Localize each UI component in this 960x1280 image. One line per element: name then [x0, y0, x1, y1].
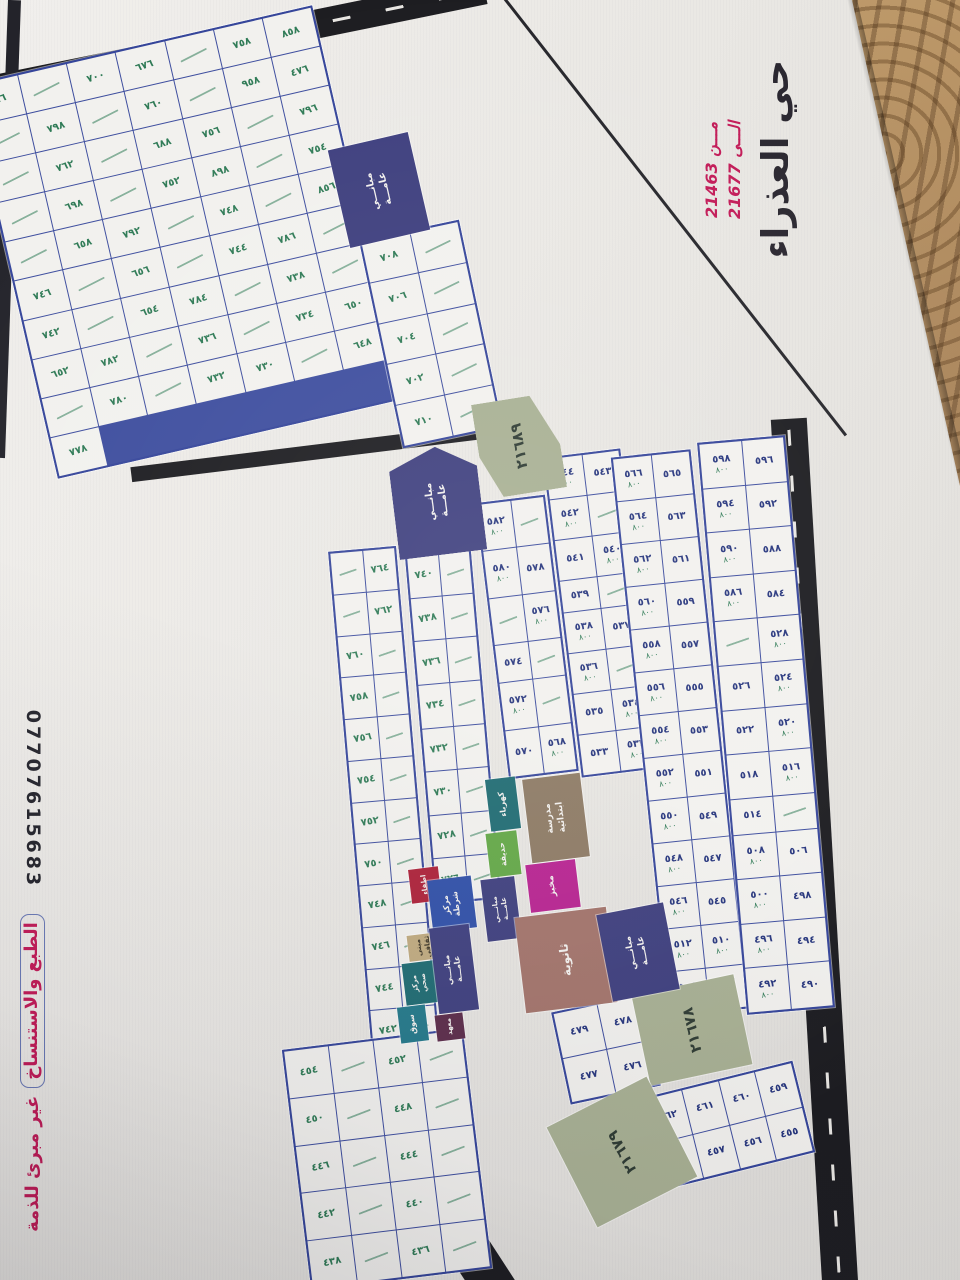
plot-cell: ٤٤٤ [385, 1130, 434, 1182]
plot-cell [385, 798, 420, 841]
plot-cell: ٤٣٨ [307, 1236, 356, 1280]
facility-institute: معهد [435, 1012, 466, 1041]
plot-cell: ٥٤٧ [692, 836, 734, 882]
plot-number-range: مـــن 21463 الـــى 21677 [699, 93, 747, 247]
plot-cell [370, 631, 405, 674]
facility-police-station: مركز شرطة [427, 876, 477, 933]
plot-cell: ٥٨٦٨٠٠ [711, 574, 756, 621]
plot-cell: ٥٥٨٨٠٠ [631, 627, 673, 673]
facility-primary-school: مدرسة ابتدائية [522, 773, 590, 863]
plot-cell: ٧٤٠ [407, 553, 441, 598]
plot-cell: ٥٨٨ [749, 526, 794, 573]
plot-cell: ٥٥٩ [665, 580, 707, 626]
plot-cell: ٤٤٦ [296, 1141, 345, 1193]
plot-cell: ٧٥٤ [349, 759, 384, 802]
plot-cell: ٥٦٤٨٠٠ [618, 498, 660, 544]
plot-cell [377, 715, 412, 758]
plot-cell: ٧٣٠ [426, 770, 460, 815]
plot-cell [340, 1136, 389, 1188]
plot-block-southwest: ٤٥٤٤٥٢٤٥٠٤٤٨٤٤٦٤٤٤٤٤٢٤٤٠٤٣٨٤٣٦ [282, 1028, 492, 1280]
plot-cell: ٥٨٤ [753, 571, 798, 618]
plot-cell: ٧٤٦ [363, 925, 398, 968]
plot-cell: ٥٣٦٨٠٠ [569, 650, 610, 694]
plot-cell: ٥٦٣ [656, 494, 698, 540]
plot-cell: ٧٣٦ [415, 640, 449, 685]
district-title: حي العذراء [744, 52, 806, 266]
plot-cell [346, 1183, 395, 1235]
plot-cell: ٥٩٠٨٠٠ [707, 530, 752, 577]
plot-cell: ٤٩٠ [788, 962, 833, 1009]
plot-cell: ٥٥٥ [674, 665, 716, 711]
plot-cell: ٧٤٤ [367, 967, 402, 1010]
plot-cell [381, 756, 416, 799]
plot-cell: ٥٧٦٨٠٠ [522, 591, 560, 641]
plot-cell [441, 1220, 490, 1272]
plot-cell: ٧٦٤ [363, 548, 398, 591]
plot-cell: ٥٧٨ [517, 544, 555, 594]
plot-cell: ٥٧٠ [505, 727, 543, 777]
plot-cell: ٧٦٠ [338, 634, 373, 677]
plot-cell: ٤٧٧ [563, 1050, 615, 1103]
plot-cell [329, 1041, 378, 1093]
plot-cell: ٥٥٦٨٠٠ [636, 669, 678, 715]
plot-cell: ٥٤١ [555, 537, 596, 581]
plot-cell [773, 793, 817, 831]
plot-cell [511, 497, 549, 547]
plot-cell [489, 595, 527, 645]
plot-cell: ٥٧٢٨٠٠ [500, 680, 538, 730]
range-to: الـــى 21677 [723, 121, 746, 219]
plot-cell: ٥٣٥ [574, 690, 615, 734]
plot-cell: ٥٤٥ [696, 879, 738, 925]
disclaimer-boxed-part: الطبع والاستنساخ [20, 914, 45, 1088]
plot-cell: ٥٧٤ [495, 642, 532, 683]
range-from: مـــن 21463 [700, 122, 723, 218]
plot-cell: ٧٢٨ [430, 813, 464, 858]
plot-cell: ٥٦٠٨٠٠ [627, 584, 669, 630]
copy-disclaimer: الطبع والاستنساخ غير مبرئ للذمة [15, 873, 49, 1273]
plot-cell: ٥١٨ [727, 752, 772, 799]
plot-cell: ٧٣٢ [422, 727, 456, 772]
plot-cell: ٧٥٠ [356, 842, 391, 885]
plot-cell [330, 551, 365, 594]
plot-cell [374, 673, 409, 716]
plot-cell [429, 1125, 478, 1177]
plot-cell: ٧٤٨ [359, 884, 394, 927]
plot-cell: ٥٤٩ [687, 794, 729, 840]
plot-cell: ٥٠٦ [776, 828, 821, 875]
facility-bakery: مخبز [525, 859, 580, 913]
plot-cell [442, 593, 476, 638]
plot-cell: ٥٩٢ [746, 482, 791, 529]
plot-cell: ٥٦٥ [651, 452, 693, 498]
plot-cell: ٧٦٢ [366, 590, 401, 633]
plot-cell: ٧١٠ [396, 396, 452, 446]
plot-cell: ٥١٠٨٠٠ [701, 922, 743, 968]
plot-cell: ٥٦٨٨٠٠ [539, 723, 577, 773]
plot-cell [533, 676, 571, 726]
facility-park: حديقة [485, 830, 521, 877]
disclaimer-rest: غير مبرئ للذمة [22, 1096, 43, 1232]
plot-cell: ٤٩٤ [784, 917, 829, 964]
plot-cell: ٥٩٤٨٠٠ [703, 486, 748, 533]
plot-cell: ٥٠٨٨٠٠ [734, 832, 779, 879]
plot-cell: ٥٢٨٨٠٠ [757, 615, 802, 662]
plot-cell [334, 593, 369, 636]
plot-cell: ٧٥٨ [341, 676, 376, 719]
plot-cell: ٥٦٦٨٠٠ [613, 456, 655, 502]
plot-cell: ٥١٦٨٠٠ [769, 749, 814, 796]
plot-cell [450, 680, 484, 725]
plot-cell: ٥٥٠٨٠٠ [649, 798, 691, 844]
plot-cell [454, 724, 488, 769]
plot-cell: ٥٤٢٨٠٠ [550, 496, 591, 540]
plot-cell: ٧٥٦ [345, 717, 380, 760]
plot-cell: ٤٩٢٨٠٠ [745, 966, 790, 1013]
plot-cell: ٥٤٨٨٠٠ [653, 840, 695, 886]
plot-cell: ٤٩٦٨٠٠ [741, 921, 786, 968]
plot-cell [528, 638, 565, 679]
plot-cell: ٥٩٨٨٠٠ [699, 441, 744, 488]
plot-cell: ٤٥٠ [290, 1094, 339, 1146]
plot-cell: ٥٣٩ [560, 577, 600, 612]
plot-cell: ٤٤٢ [302, 1189, 351, 1241]
plot-cell: ٥٥٧ [669, 623, 711, 669]
plot-cell: ٧٣٤ [418, 683, 452, 728]
plot-cell: ٤٣٦ [396, 1225, 445, 1277]
plot-cell [435, 1172, 484, 1224]
plot-cell: ٥٦١ [660, 537, 702, 583]
plot-cell [352, 1231, 401, 1280]
plot-cell: ٥٨٠٨٠٠ [483, 548, 521, 598]
plot-cell: ٤٤٨ [379, 1083, 428, 1135]
plot-cell: ٥٢٤٨٠٠ [761, 660, 806, 707]
plot-cell: ٥٢٠٨٠٠ [765, 704, 810, 751]
photographed-subdivision-map: حي العذراء مـــن 21463 الـــى 21677 0770… [0, 0, 960, 1280]
plot-cell: ٥٣٣ [579, 731, 620, 775]
plot-cell: ٤٧٩ [554, 1005, 606, 1058]
plot-cell: ٥٥١ [683, 751, 725, 797]
plot-cell: ٤٩٨ [780, 873, 825, 920]
plot-cell [446, 637, 480, 682]
plot-cell: ٥٥٤٨٠٠ [640, 712, 682, 758]
plot-cell: ٥٦٢٨٠٠ [622, 541, 664, 587]
plot-cell [423, 1077, 472, 1129]
plot-cell [715, 619, 760, 666]
plot-cell: ٥٢٦ [719, 663, 764, 710]
plot-cell: ٧٣٨ [411, 596, 445, 641]
plot-cell: ٥٠٠٨٠٠ [737, 877, 782, 924]
plot-cell: ٤٥٢ [373, 1035, 422, 1087]
plot-cell: ٧٥٢ [352, 801, 387, 844]
plot-cell: ٥٥٢٨٠٠ [645, 755, 687, 801]
plot-cell: ٥٥٣ [678, 708, 720, 754]
plot-cell: ٤٥٤ [284, 1046, 333, 1098]
plot-cell [438, 550, 472, 595]
plot-cell: ٥١٤ [730, 797, 774, 835]
plot-cell: ٤٤٠ [390, 1178, 439, 1230]
plot-cell: ٥٣٨٨٠٠ [564, 609, 605, 653]
facility-market: سوق [397, 1004, 429, 1043]
facility-electricity: كهرباء [485, 776, 521, 831]
plot-cell [334, 1088, 383, 1140]
plot-cell: ٥٢٢ [723, 708, 768, 755]
plot-cell: ٥٩٦ [742, 437, 787, 484]
